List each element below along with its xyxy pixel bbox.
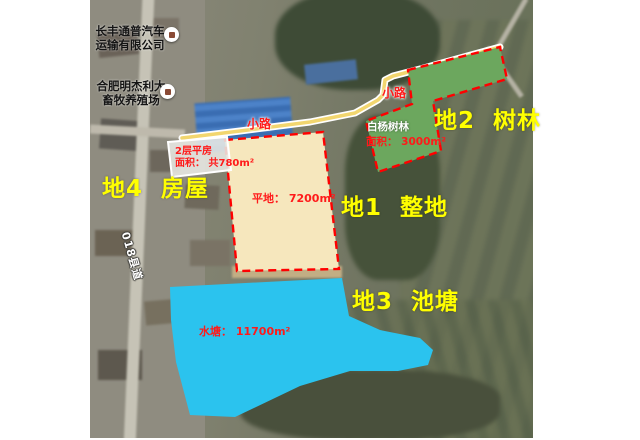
parcel1-title: 地1 整地 <box>341 195 448 221</box>
parcel1-area-label: 平地： 7200m² <box>252 193 336 206</box>
poi-farm-line1: 合肥明杰利大 <box>93 80 169 94</box>
poi-marker-icon <box>164 27 179 42</box>
poi-farm-line2: 畜牧养殖场 <box>93 94 169 108</box>
poi-marker-square-icon <box>169 32 175 38</box>
trail-label-2: 小路 <box>382 87 406 101</box>
parcel3-title: 地3 池塘 <box>352 289 459 315</box>
building-roof <box>190 240 230 266</box>
parcel2-area-label: 面积： 3000m² <box>366 136 446 148</box>
trail-label-1: 小路 <box>247 118 271 132</box>
poi-marker-square-icon <box>165 89 171 95</box>
poi-company-label: 长丰通普汽车 运输有限公司 <box>93 25 167 52</box>
poi-company-line2: 运输有限公司 <box>93 39 167 53</box>
map-canvas <box>90 0 533 438</box>
poi-company-line1: 长丰通普汽车 <box>93 25 167 39</box>
parcel4-title: 地4 房屋 <box>102 176 209 202</box>
poi-marker-icon <box>160 84 175 99</box>
poi-farm-label: 合肥明杰利大 畜牧养殖场 <box>93 80 169 107</box>
parcel2-title: 地2 树林 <box>434 108 541 134</box>
parcel3-area-label: 水塘： 11700m² <box>199 326 290 339</box>
parcel4-building-label: 2层平房 <box>175 146 212 158</box>
dirt-strip <box>232 266 342 278</box>
annotated-satellite-map: 长丰通普汽车 运输有限公司 合肥明杰利大 畜牧养殖场 018县道 小路 小路 地… <box>0 0 640 440</box>
building-roof <box>144 298 182 325</box>
terrain-trees-pond <box>240 370 500 438</box>
blue-warehouse-roof <box>194 97 293 154</box>
parcel4-area-label: 面积： 共780m² <box>175 158 254 170</box>
parcel2-name-label: 白杨树林 <box>367 121 409 133</box>
